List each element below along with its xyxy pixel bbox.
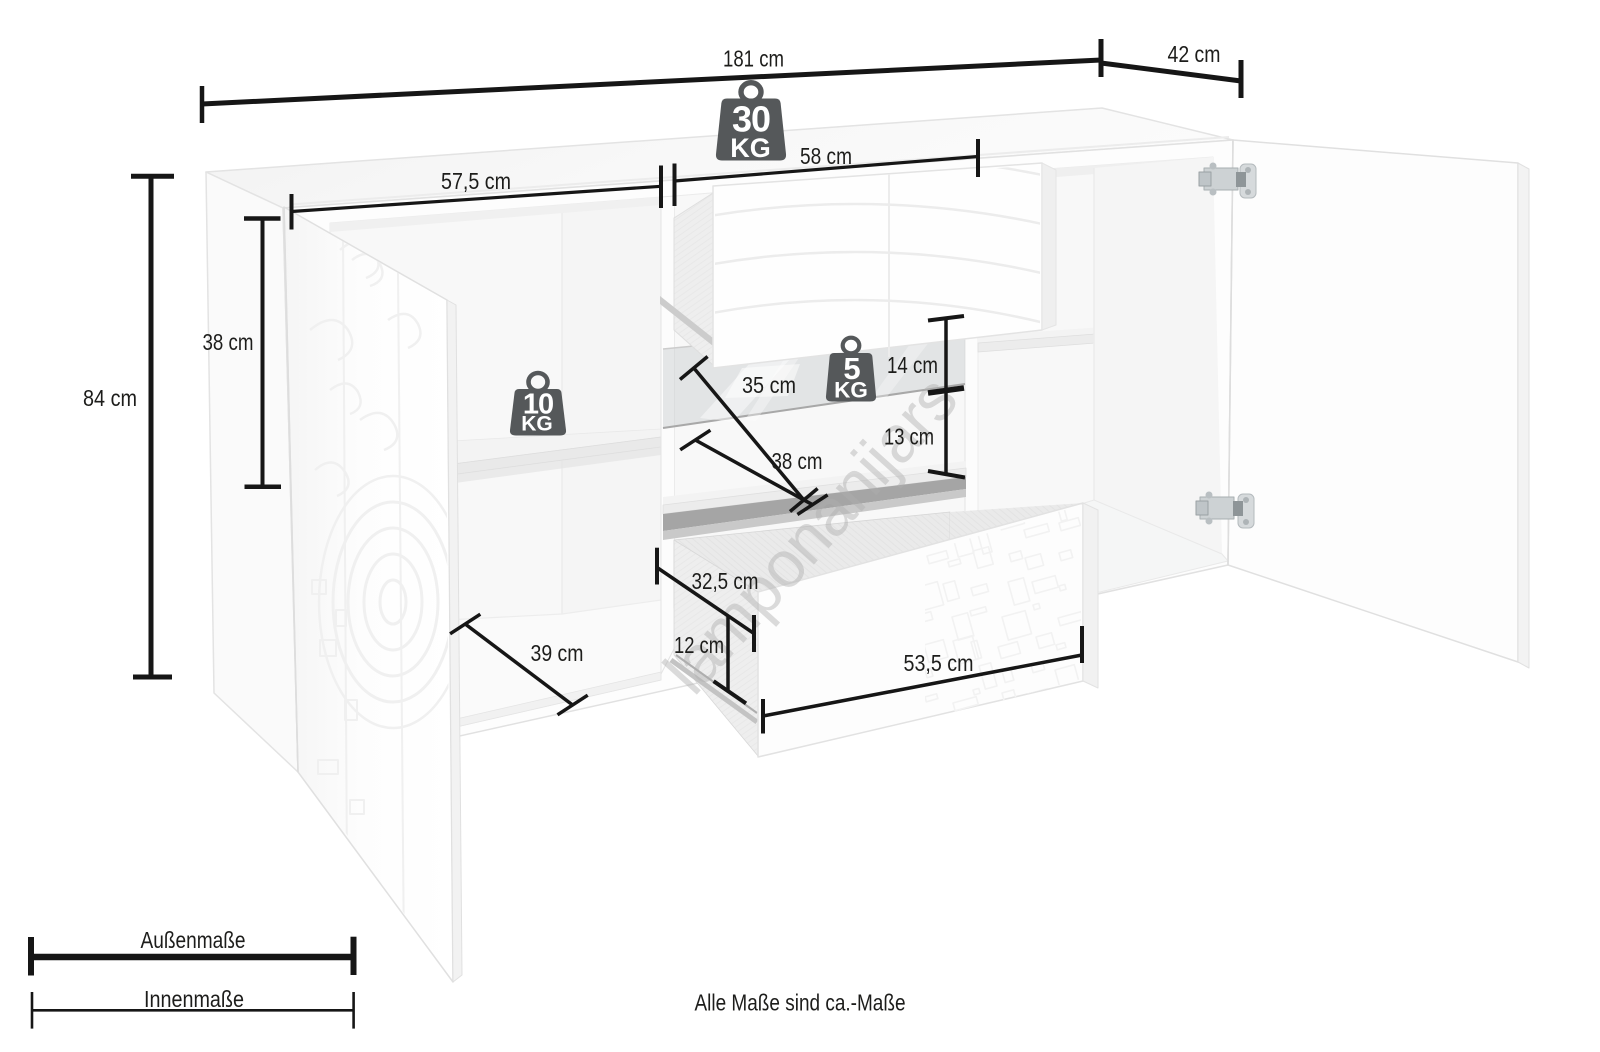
svg-text:39 cm: 39 cm xyxy=(531,640,584,666)
svg-text:35 cm: 35 cm xyxy=(742,372,796,398)
svg-text:84 cm: 84 cm xyxy=(83,385,137,411)
svg-text:12 cm: 12 cm xyxy=(674,632,724,658)
svg-text:58 cm: 58 cm xyxy=(800,143,852,169)
svg-text:KG: KG xyxy=(834,378,868,403)
svg-text:14 cm: 14 cm xyxy=(887,352,938,378)
svg-text:53,5 cm: 53,5 cm xyxy=(904,650,974,676)
svg-text:38 cm: 38 cm xyxy=(203,329,254,355)
svg-text:32,5 cm: 32,5 cm xyxy=(692,568,759,594)
svg-text:Alle Maße sind ca.-Maße: Alle Maße sind ca.-Maße xyxy=(695,990,906,1016)
svg-text:38 cm: 38 cm xyxy=(772,448,823,474)
svg-text:KG: KG xyxy=(521,413,553,436)
svg-text:181 cm: 181 cm xyxy=(723,46,784,72)
svg-text:Innenmaße: Innenmaße xyxy=(144,986,244,1012)
svg-text:13 cm: 13 cm xyxy=(884,424,934,450)
svg-text:57,5 cm: 57,5 cm xyxy=(441,168,511,194)
svg-text:Außenmaße: Außenmaße xyxy=(141,927,246,953)
svg-text:42 cm: 42 cm xyxy=(1168,41,1221,67)
svg-text:KG: KG xyxy=(730,133,771,163)
